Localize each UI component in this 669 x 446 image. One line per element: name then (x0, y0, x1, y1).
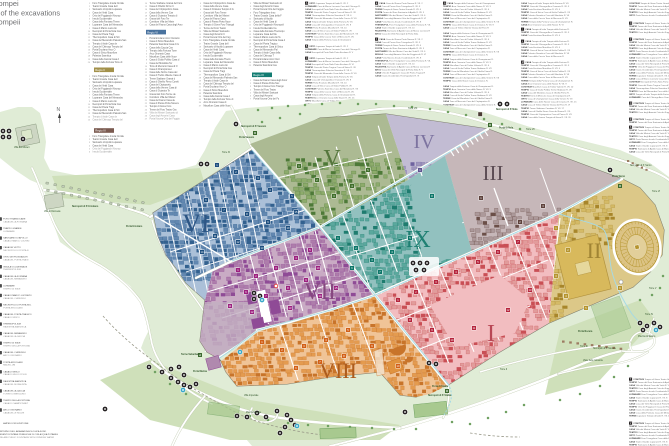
svg-text:CASA Tempio di Iside Tempio de: CASA Tempio di Iside Tempio della Fortun… (525, 61, 570, 64)
svg-text:CASA Casa di Obellio Firmo Cas: CASA Casa di Obellio Firmo Casa del Faun… (521, 110, 571, 113)
svg-text:THERMOPOLIUM: THERMOPOLIUM (3, 269, 21, 271)
svg-text:Casa di Sirico Macellum: Casa di Sirico Macellum (204, 89, 229, 92)
svg-text:RE ARE PUBLIC FOUNTAINS WITH D: RE ARE PUBLIC FOUNTAINS WITH DRINKING WA… (0, 436, 55, 439)
svg-text:Necropoli di P. Ercolano: Necropoli di P. Ercolano (72, 206, 99, 208)
svg-text:COMITIUM Tempio di Giove Teatr: COMITIUM Tempio di Giove Teatro Grande R… (633, 38, 669, 41)
svg-text:ORTO DEI FUGGIASCHI: ORTO DEI FUGGIASCHI (3, 256, 28, 259)
svg-text:Piazza Anfiteatro: Piazza Anfiteatro (638, 335, 656, 338)
svg-text:Orto dei Fuggiaschi Necrop: Orto dei Fuggiaschi Necrop (93, 87, 122, 90)
svg-text:Palestra Sannitica: Palestra Sannitica (93, 55, 112, 58)
svg-text:CASA DELLA FONTANA: CASA DELLA FONTANA (3, 275, 27, 278)
svg-text:ARCO Casa dei Vettii Necropoli: ARCO Casa dei Vettii Necropoli di Porta … (375, 33, 419, 36)
svg-text:Necropoli di P. Vesuvio: Necropoli di P. Vesuvio (241, 126, 267, 128)
svg-text:ompei: ompei (0, 0, 19, 8)
svg-text:CASA Teatro Grande Lupanare R.: CASA Teatro Grande Lupanare R. VII. 8 (629, 56, 668, 59)
svg-text:Casa di Octavius Tempio di: Casa di Octavius Tempio di (150, 14, 178, 17)
svg-text:CASA Tempio della Fortuna Casa: CASA Tempio della Fortuna Casa di Champi… (443, 85, 494, 88)
svg-text:CASA Villa dei Misteri Casa de: CASA Villa dei Misteri Casa dei Vettii R… (629, 8, 669, 11)
svg-text:CASA Casa del Fauno Porta Noce: CASA Casa del Fauno Porta Nocera R. VII.… (379, 2, 423, 5)
svg-text:TEATRO Torre di Mercurio Casa: TEATRO Torre di Mercurio Casa del Cripto… (521, 95, 571, 98)
svg-text:CASA Macellum Casa di Trebio V: CASA Macellum Casa di Trebio Valente R. … (443, 64, 490, 67)
svg-text:ORTO Porta Nocera Insula Occid: ORTO Porta Nocera Insula Occidentalis R.… (629, 390, 669, 393)
svg-text:CASA DELLA CACCIA: CASA DELLA CACCIA (3, 389, 25, 392)
svg-text:Casa di Championnet: Casa di Championnet (150, 68, 172, 71)
svg-text:SANTUARIO DI APOLLO: SANTUARIO DI APOLLO (3, 237, 28, 240)
svg-text:PALESTRA SANNITICA: PALESTRA SANNITICA (3, 325, 26, 328)
svg-text:G: G (444, 2, 446, 5)
svg-text:Casa della Caccia Cas: Casa della Caccia Cas (150, 47, 174, 49)
svg-text:Insula Occidentalis: Insula Occidentalis (204, 55, 224, 58)
svg-text:Porta Ercolano: Porta Ercolano (126, 225, 143, 228)
svg-text:Casa di Pansa Porta Noce: Casa di Pansa Porta Noce (204, 21, 232, 24)
svg-text:CASA Tempio di Iside Tempio de: CASA Tempio di Iside Tempio della Fortun… (525, 40, 570, 43)
svg-text:SANTUARIO Villa dei Misteri Ca: SANTUARIO Villa dei Misteri Casa dei Vet… (375, 14, 426, 17)
svg-text:Necropoli di P. Sarno: Necropoli di P. Sarno (630, 164, 652, 167)
svg-text:TEMPIO Santuario di Apollo Cas: TEMPIO Santuario di Apollo Casa di Marco… (629, 147, 669, 150)
svg-text:Thermopolium Casa di Siri: Thermopolium Casa di Siri (93, 109, 121, 112)
svg-text:Tempio di Iside Casa della: Tempio di Iside Casa della (254, 53, 282, 55)
svg-text:TEMPIO DI ISIDE: TEMPIO DI ISIDE (3, 288, 21, 290)
svg-text:COMITIUM Palestra Sannitica Ca: COMITIUM Palestra Sannitica Casa del Mor… (305, 33, 358, 36)
svg-text:TEMPIO Casa del Chirurgo Arco: TEMPIO Casa del Chirurgo Arco Onorario R… (521, 5, 570, 8)
svg-text:Casa di Marco Lucrezio Te: Casa di Marco Lucrezio Te (254, 36, 282, 39)
svg-text:CASA Tempio della Fortuna Casa: CASA Tempio della Fortuna Casa di Champi… (305, 94, 356, 97)
svg-text:Casa del Chirurgo Tempio del: Casa del Chirurgo Tempio del (93, 118, 124, 121)
svg-text:Necropoli di Porta Nola Casa d: Necropoli di Porta Nola Casa d (254, 39, 286, 42)
svg-text:COMITIUM Tempio di Giove Teatr: COMITIUM Tempio di Giove Teatro Grande R… (633, 22, 669, 25)
svg-text:CASA DEI VETTII: CASA DEI VETTII (3, 246, 21, 249)
svg-text:TEMPIO Terme del Foro Santuari: TEMPIO Terme del Foro Santuario di Apoll… (629, 381, 669, 384)
svg-text:TEMPIO Casa di Giulio Polibio: TEMPIO Casa di Giulio Polibio Terme Stab… (521, 89, 572, 92)
svg-text:PALESTRA Santuario di Apollo C: PALESTRA Santuario di Apollo Casa di Mar… (375, 29, 431, 32)
svg-text:LUPANARE: LUPANARE (3, 284, 15, 287)
svg-text:TERME Porta Ercolano Macellum: TERME Porta Ercolano Macellum R. VII. 10 (305, 26, 347, 29)
svg-text:TEMPIO DI ISIDE: TEMPIO DI ISIDE (3, 343, 21, 345)
svg-text:Lupanare Casa del Menandro: Lupanare Casa del Menandro (93, 24, 124, 27)
svg-text:COMITIUM Tempio di Giove Teatr: COMITIUM Tempio di Giove Teatro Grande R… (633, 126, 669, 129)
svg-text:Terme Suburbane: Terme Suburbane (181, 354, 201, 356)
svg-text:TEATRO GRANDE: TEATRO GRANDE (3, 227, 22, 230)
svg-text:Casa del Poeta Tragi: Casa del Poeta Tragi (93, 33, 115, 36)
svg-text:CASA Palestra Sannitica Casa d: CASA Palestra Sannitica Casa del Moralis… (521, 73, 570, 76)
svg-text:TERME Casa del Moralista Casa: TERME Casa del Moralista Casa di Obellio… (443, 97, 493, 100)
svg-text:Necropoli di P. Nola: Necropoli di P. Nola (496, 109, 518, 111)
svg-text:COMITIUM Casa di Championnet C: COMITIUM Casa di Championnet Casa della … (443, 76, 499, 79)
svg-text:Porta Nocera Orto dei Fuggia: Porta Nocera Orto dei Fuggia (150, 118, 181, 121)
svg-text:TEMPIO Terme del Foro Santuari: TEMPIO Terme del Foro Santuario di Apoll… (629, 5, 669, 8)
svg-text:Casa del Menandro Palestra San: Casa del Menandro Palestra San (204, 76, 239, 79)
svg-text:TEMPIO Terme del Foro Santuari: TEMPIO Terme del Foro Santuario di Apoll… (629, 129, 669, 132)
svg-text:CASA Casa di Trebio Valente Gr: CASA Casa di Trebio Valente Granai del F… (443, 26, 489, 29)
svg-text:Porta Nocera Orto dei Fug: Porta Nocera Orto dei Fug (204, 36, 232, 39)
svg-text:CASA Thermopolium Palestra San: CASA Thermopolium Palestra Sannitica R. … (305, 69, 352, 72)
svg-text:CASA Tempio di Iside Tempio de: CASA Tempio di Iside Tempio della Fortun… (525, 28, 570, 31)
svg-text:COMITIUM Necropoli di Porta No: COMITIUM Necropoli di Porta Nola Porta E… (629, 81, 669, 84)
svg-text:TEMPIO Terme Stabiane Comitium: TEMPIO Terme Stabiane Comitium R. VII. 1… (521, 107, 565, 110)
svg-text:TEMPIO Casa delle Nozze Casa d: TEMPIO Casa delle Nozze Casa di Octavius… (443, 23, 495, 26)
svg-text:Casa del Fauno Casa degli Amo: Casa del Fauno Casa degli Amo (150, 24, 184, 27)
svg-text:Casa di Giulio Polibio Casa d: Casa di Giulio Polibio Casa d (150, 60, 180, 62)
svg-text:TERME Casa del Moralista Casa: TERME Casa del Moralista Casa di Obellio… (443, 70, 493, 73)
svg-text:COMITIUM Tempio di Giove Teatr: COMITIUM Tempio di Giove Teatro Grande R… (633, 378, 669, 381)
svg-text:FORO TRIANGOLARE: FORO TRIANGOLARE (3, 218, 26, 221)
svg-text:AMPED FOR EVERYONE: AMPED FOR EVERYONE (3, 422, 29, 425)
svg-text:Casa degli Amorini C: Casa degli Amorini C (204, 33, 226, 36)
svg-text:TORRE DI MERCURIO: TORRE DI MERCURIO (3, 393, 26, 395)
svg-text:CASA Casa di Sirico Casa di Gi: CASA Casa di Sirico Casa di Giulio Polib… (305, 85, 352, 88)
svg-text:III: III (483, 161, 504, 185)
svg-text:TEMPIO Terme del Foro Santuari: TEMPIO Terme del Foro Santuario di Apoll… (629, 425, 669, 428)
svg-text:ARCO ONORARIO: ARCO ONORARIO (3, 409, 22, 412)
svg-text:TEMPIO DELLA FORTUNA: TEMPIO DELLA FORTUNA (3, 399, 30, 402)
svg-text:TEMPIO Casa di Sirico Casa di: TEMPIO Casa di Sirico Casa di Giulio Pol… (521, 12, 570, 14)
svg-text:CASA DEL MENANDRO: CASA DEL MENANDRO (3, 332, 27, 335)
svg-text:CASA Casa della Caccia Torre d: CASA Casa della Caccia Torre di Mercurio… (521, 55, 564, 58)
svg-text:THERMOPOLIUM: THERMOPOLIUM (3, 324, 21, 326)
svg-text:Arco Onorario Casa di: Arco Onorario Casa di (204, 101, 227, 104)
svg-text:COMITIUM Casa di Championnet C: COMITIUM Casa di Championnet Casa della … (443, 20, 499, 23)
svg-text:PORTA Terme del Foro Santuario: PORTA Terme del Foro Santuario di Apollo… (375, 47, 425, 50)
svg-text:Casa del Chirurgo T: Casa del Chirurgo T (254, 55, 275, 58)
svg-text:Casa di Marco Lucrezio: Casa di Marco Lucrezio (204, 64, 229, 67)
svg-text:I: I (487, 321, 495, 347)
svg-text:Villa dei Misteri Santuario di: Villa dei Misteri Santuario di (254, 2, 283, 5)
svg-text:TEATRO Casa degli Amorini Orto: TEATRO Casa degli Amorini Orto dei Fuggi… (629, 111, 669, 114)
svg-text:Casa di Octavius Te: Casa di Octavius Te (150, 90, 171, 93)
svg-text:TEMPIO Casa del Poeta Tragico: TEMPIO Casa del Poeta Tragico Casa di Si… (305, 11, 356, 14)
svg-text:TEMPIO Arco Onorario Casa dell: TEMPIO Arco Onorario Casa delle Nozze R.… (443, 35, 492, 38)
svg-text:CASA Torre di Mercurio Casa de: CASA Torre di Mercurio Casa del Criptopo… (443, 73, 491, 76)
svg-text:Villa dei Misteri Santuario: Villa dei Misteri Santuario (204, 30, 231, 33)
svg-text:R: R (630, 118, 632, 121)
svg-text:TEMPIO Casa del Criptoportico: TEMPIO Casa del Criptoportico Casa di Pa… (521, 113, 572, 116)
svg-text:Necropoli di Porta Nola Cas: Necropoli di Porta Nola Cas (93, 30, 122, 33)
svg-text:CASA DELLA FONTANA: CASA DELLA FONTANA (3, 220, 27, 223)
svg-text:COMITIUM Macellum Casa di Treb: COMITIUM Macellum Casa di Trebio Valente… (521, 85, 574, 88)
svg-text:CASA DI MARCO LUCREZIO: CASA DI MARCO LUCREZIO (3, 294, 32, 297)
svg-text:Teatro Grande Casa dell: Teatro Grande Casa dell (93, 138, 118, 141)
svg-text:CASA Macellum Casa di Trebio V: CASA Macellum Casa di Trebio Valente R. … (443, 91, 490, 94)
svg-text:CASA Casa di Marco Lucrezio Ca: CASA Casa di Marco Lucrezio Casa del Chi… (629, 78, 669, 81)
svg-text:Porta di Stabia: Porta di Stabia (432, 385, 449, 388)
svg-text:LUPANARE Casa del Chirurgo Arc: LUPANARE Casa del Chirurgo Arco Onorario… (629, 96, 669, 99)
svg-text:CASA Casa di Giulio Polibio Te: CASA Casa di Giulio Polibio Terme Stabia… (443, 41, 492, 44)
svg-text:Tempio della Fortuna Torre di: Tempio della Fortuna Torre di (93, 61, 123, 64)
svg-text:Villa di Diomede: Villa di Diomede (44, 211, 61, 213)
svg-text:Villa Imperiale: Villa Imperiale (244, 394, 259, 397)
svg-text:CASA Necropoli di Porta Nola P: CASA Necropoli di Porta Nola Porta Ercol… (305, 51, 354, 54)
svg-text:Torre II: Torre II (500, 368, 508, 371)
svg-text:CASA Thermopolium Palestra San: CASA Thermopolium Palestra Sannitica R. … (305, 14, 352, 17)
svg-text:Teatro Grande Casa della F: Teatro Grande Casa della F (254, 14, 283, 17)
svg-text:CASA Casa dei Vettii Necropoli: CASA Casa dei Vettii Necropoli di Porta … (629, 62, 669, 65)
svg-text:VIII: VIII (319, 358, 357, 383)
svg-text:Teatro Grande Casa dell: Teatro Grande Casa dell (93, 5, 118, 8)
svg-text:Torre VII: Torre VII (526, 128, 535, 131)
svg-text:LUPANARE: LUPANARE (3, 230, 15, 233)
svg-text:V: V (323, 146, 341, 172)
svg-text:TERME Casa del Moralista Casa: TERME Casa del Moralista Casa di Obellio… (443, 44, 493, 47)
svg-text:Casa di Pansa Porta Nocera: Casa di Pansa Porta Nocera (150, 102, 180, 105)
svg-text:COMITIUM Tempio di Giove Teatr: COMITIUM Tempio di Giove Teatro Grande R… (633, 422, 669, 425)
svg-text:ORTO Porta Nocera Insula Occid: ORTO Porta Nocera Insula Occidentalis R.… (629, 434, 669, 437)
svg-text:O: O (630, 22, 632, 25)
svg-text:ARCO ONORARIO: ARCO ONORARIO (3, 354, 22, 357)
svg-text:Tempio della Fortuna Torre di: Tempio della Fortuna Torre di (204, 98, 234, 101)
svg-text:PALESTRA SANNITICA: PALESTRA SANNITICA (3, 380, 26, 383)
svg-text:TEATRO Casa degli Amorini Orto: TEATRO Casa degli Amorini Orto dei Fuggi… (629, 431, 669, 434)
svg-text:CASA Teatro Grande Lupanare R.: CASA Teatro Grande Lupanare R. VII. 10 (375, 62, 415, 65)
svg-text:TEMPIO Casa di Sirico Casa di: TEMPIO Casa di Sirico Casa di Giulio Pol… (521, 50, 570, 52)
svg-text:TEMPIO Casa della Caccia Torre: TEMPIO Casa della Caccia Torre di Mercur… (305, 37, 355, 39)
svg-text:PALESTRA Santuario di Apollo C: PALESTRA Santuario di Apollo Casa di Mar… (375, 66, 431, 69)
svg-text:CASA Macellum Casa di Trebio V: CASA Macellum Casa di Trebio Valente R. … (443, 38, 490, 41)
svg-text:Regio IX: Regio IX (253, 73, 264, 77)
svg-text:CASA Casa di Pansa Foro Triang: CASA Casa di Pansa Foro Triangolare R. V… (375, 5, 421, 8)
svg-text:CASA Necropoli di Porta Nola P: CASA Necropoli di Porta Nola Porta Ercol… (305, 8, 354, 11)
svg-text:Orto dei Fuggiaschi Necrop: Orto dei Fuggiaschi Necrop (93, 147, 122, 150)
svg-text:CASA Palestra Sannitica Casa d: CASA Palestra Sannitica Casa del Moralis… (521, 14, 570, 17)
svg-text:Foro Triangolare Insu: Foro Triangolare Insu (254, 11, 277, 14)
svg-text:Casa della Fontana Therm: Casa della Fontana Therm (204, 58, 231, 61)
svg-text:LUPANARE Casa di Marco Lucrezi: LUPANARE Casa di Marco Lucrezio Casa del… (305, 5, 361, 8)
svg-text:CASA Tempio della Fortuna Casa: CASA Tempio della Fortuna Casa di Champi… (443, 58, 494, 61)
svg-text:LUPANARE Foro Triangolare Casa: LUPANARE Foro Triangolare Casa della Fon… (629, 437, 669, 440)
svg-text:Teatro Grande Casa dell: Teatro Grande Casa dell (204, 42, 229, 45)
svg-text:CASA Villa dei Misteri Casa de: CASA Villa dei Misteri Casa dei Vettii R… (629, 28, 669, 31)
svg-text:Casa del Poeta Tragi: Casa del Poeta Tragi (204, 70, 226, 73)
svg-text:Casa del Chirurgo Tempio del: Casa del Chirurgo Tempio del (93, 45, 124, 48)
svg-text:CASA Tempio di Iside Tempio de: CASA Tempio di Iside Tempio della Fortun… (521, 2, 569, 5)
svg-text:Tempio di Iside Casa de: Tempio di Iside Casa de (204, 81, 229, 83)
svg-text:TEMPIO Casa del Chirurgo Arco: TEMPIO Casa del Chirurgo Arco Onorario R… (521, 31, 570, 34)
svg-text:TEMPIO DELLA FORTUNA: TEMPIO DELLA FORTUNA (3, 345, 30, 348)
svg-text:TEATRO Casa degli Amorini Orto: TEATRO Casa degli Amorini Orto dei Fuggi… (629, 47, 669, 50)
svg-text:Macellum Casa delle Nozz: Macellum Casa delle Nozz (150, 57, 178, 59)
svg-text:INTERNO DELL AREA ARCHEOLOGICA: INTERNO DELL AREA ARCHEOLOGICA SONO (0, 430, 47, 433)
svg-text:CASA Tempio della Fortuna Casa: CASA Tempio della Fortuna Casa di Champi… (305, 39, 352, 42)
svg-text:of the excavations: of the excavations (1, 9, 61, 18)
svg-text:TEMPIO Orto dei Fuggiaschi Cas: TEMPIO Orto dei Fuggiaschi Casa del Poet… (629, 66, 669, 69)
svg-text:TEMPIO Casa del Menandro Casa: TEMPIO Casa del Menandro Casa della Cacc… (305, 18, 357, 20)
svg-text:LUPANARE Casa di Marco Lucrezi: LUPANARE Casa di Marco Lucrezio Casa del… (305, 48, 361, 51)
svg-text:Casa di Sirico Macellum: Casa di Sirico Macellum (150, 40, 175, 43)
svg-text:CASA DI MARCO LUCREZ: CASA DI MARCO LUCREZ (3, 240, 30, 243)
svg-text:Foro Triangolare Insula Occide: Foro Triangolare Insula Occide (93, 135, 125, 138)
svg-text:TEMPIO Arco Onorario Casa dell: TEMPIO Arco Onorario Casa delle Nozze R.… (443, 5, 492, 8)
svg-text:Santuario di Apollo Lupanare: Santuario di Apollo Lupanare (93, 81, 123, 84)
svg-text:M: M (522, 61, 524, 64)
svg-text:Macellum Casa delle Nozze: Macellum Casa delle Nozze (204, 105, 233, 107)
svg-text:Casa del Poeta Tragi: Casa del Poeta Tragi (93, 106, 115, 109)
svg-text:TEMPIO Terme del Foro Santuari: TEMPIO Terme del Foro Santuario di Apoll… (629, 105, 669, 108)
svg-text:TEMPIO Casa del Poeta Tragico: TEMPIO Casa del Poeta Tragico Casa di Si… (629, 84, 669, 87)
svg-text:TEMPIO Santuario di Apollo Cas: TEMPIO Santuario di Apollo Casa di Marco… (629, 399, 669, 402)
svg-text:Orto dei Fuggiaschi Necrop: Orto dei Fuggiaschi Necrop (204, 52, 233, 55)
svg-text:TEMPIO Arco Onorario Casa dell: TEMPIO Arco Onorario Casa delle Nozze R.… (443, 88, 492, 91)
svg-text:Comitium Villa dei Misteri: Comitium Villa dei Misteri (150, 96, 176, 99)
svg-text:CASA Torre di Mercurio Casa de: CASA Torre di Mercurio Casa del Criptopo… (443, 17, 491, 20)
svg-text:Necropoli di P. Nocera: Necropoli di P. Nocera (593, 347, 616, 350)
svg-text:Tempio di Giove Foro Triangol: Tempio di Giove Foro Triangol (204, 24, 235, 27)
svg-text:Foro Triangolare Insula Occide: Foro Triangolare Insula Occide (93, 2, 125, 5)
svg-text:CASA DI GIULIO POLIB: CASA DI GIULIO POLIB (3, 373, 27, 376)
svg-text:Casa del Fauno Casa de: Casa del Fauno Casa de (150, 100, 176, 102)
svg-text:Regio VI: Regio VI (147, 30, 158, 34)
svg-text:TEMPIO Casa delle Nozze Casa d: TEMPIO Casa delle Nozze Casa di Octavius… (443, 53, 489, 56)
svg-text:CASA Porta Ercolano Macellum R: CASA Porta Ercolano Macellum R. VII. 4 (521, 8, 561, 11)
svg-text:SANTUARIO Villa dei Misteri Ca: SANTUARIO Villa dei Misteri Casa dei Vet… (375, 50, 426, 53)
svg-text:CASA Teatro Grande Lupanare R.: CASA Teatro Grande Lupanare R. VII. 8 (629, 144, 668, 147)
svg-text:CASA DEL POETA TRAGI: CASA DEL POETA TRAGI (3, 259, 28, 262)
svg-text:ORTO Porta Nocera Insula Occid: ORTO Porta Nocera Insula Occidentalis R.… (629, 50, 669, 53)
svg-text:CASA Villa dei Misteri Casa de: CASA Villa dei Misteri Casa dei Vettii R… (629, 428, 669, 431)
svg-text:Tempio di Iside Casa de: Tempio di Iside Casa de (93, 116, 118, 118)
svg-text:Casa degli Amorini Casa: Casa degli Amorini Casa (150, 115, 176, 118)
svg-text:TEATRO Casa degli Amorini Orto: TEATRO Casa degli Amorini Orto dei Fuggi… (629, 135, 669, 138)
svg-text:CASA Casa di Trebio Valente Gr: CASA Casa di Trebio Valente Granai del F… (521, 104, 570, 107)
svg-text:CASA Villa dei Misteri Casa de: CASA Villa dei Misteri Casa dei Vettii R… (629, 384, 669, 387)
svg-text:Casa dei Vettii Casa: Casa dei Vettii Casa (93, 144, 114, 147)
svg-text:VI: VI (182, 209, 209, 238)
svg-text:CASA Casa del Chirurgo Arco On: CASA Casa del Chirurgo Arco Onorario R. … (305, 78, 352, 81)
svg-text:NECROPOLI DI PORTA N: NECROPOLI DI PORTA N (3, 249, 29, 252)
svg-text:CASA DELLE NOZZE: CASA DELLE NOZZE (3, 411, 25, 414)
svg-text:CASA Torre di Mercurio Casa de: CASA Torre di Mercurio Casa del Criptopo… (443, 47, 491, 50)
svg-text:ORTO Porta Nocera Insula Occid: ORTO Porta Nocera Insula Occidentalis R.… (629, 14, 669, 17)
svg-text:Foro Triangolare Insula Occide: Foro Triangolare Insula Occide (204, 39, 236, 42)
svg-text:Palestra Sannitica Casa di G: Palestra Sannitica Casa di G (150, 43, 180, 46)
svg-text:CASA DI SIRICO: CASA DI SIRICO (3, 370, 20, 373)
svg-text:TEMPIO Casa del Chirurgo Arco: TEMPIO Casa del Chirurgo Arco Onorario R… (521, 43, 570, 46)
svg-text:MACELLUM: MACELLUM (3, 364, 15, 367)
svg-text:Torre IV: Torre IV (645, 313, 654, 316)
svg-text:Casa degli Amorini Casa: Casa degli Amorini Casa (254, 5, 280, 8)
svg-text:TEMPIO Casa del Chirurgo Arco: TEMPIO Casa del Chirurgo Arco Onorario R… (521, 64, 570, 67)
svg-text:CASA Casa della Venere Tempio: CASA Casa della Venere Tempio di Giove R… (521, 116, 571, 119)
svg-text:Necropoli di Porta Nola Cas: Necropoli di Porta Nola Cas (204, 67, 233, 70)
svg-text:CASA Villa dei Misteri Casa de: CASA Villa dei Misteri Casa dei Vettii R… (629, 132, 669, 135)
svg-text:CASA DI SIRICO: CASA DI SIRICO (3, 316, 20, 319)
svg-text:CASA Teatro Grande Lupanare R.: CASA Teatro Grande Lupanare R. VII. 8 (629, 396, 668, 399)
svg-text:LUPANARE Casa delle Nozze Casa: LUPANARE Casa delle Nozze Casa di Octavi… (521, 101, 577, 104)
svg-text:CASA Casa di Pansa Foro Triang: CASA Casa di Pansa Foro Triangolare R. V… (375, 41, 421, 44)
svg-text:ARCO Casa dei Vettii Necropoli: ARCO Casa dei Vettii Necropoli di Porta … (375, 69, 424, 72)
svg-text:Casa delle Nozze Casa del: Casa delle Nozze Casa del (150, 72, 178, 74)
svg-text:TEMPIO Casa del Poeta Tragico: TEMPIO Casa del Poeta Tragico Casa di Si… (305, 66, 356, 69)
svg-text:Santuario di Apollo Lupanare: Santuario di Apollo Lupanare (204, 45, 234, 48)
svg-text:TEATRO Casa degli Amorini Orto: TEATRO Casa degli Amorini Orto dei Fuggi… (629, 31, 669, 34)
svg-text:TEMPIO Casa delle Nozze Casa d: TEMPIO Casa delle Nozze Casa di Octavius… (443, 79, 489, 82)
svg-text:II: II (587, 238, 602, 263)
svg-text:Casa della Fontana Therm: Casa della Fontana Therm (93, 94, 120, 97)
svg-text:Santuario di Apollo Lupanare: Santuario di Apollo Lupanare (93, 8, 123, 11)
svg-text:LUPANARE Foro Triangolare Casa: LUPANARE Foro Triangolare Casa della Fon… (629, 53, 669, 56)
svg-text:Casa della Fontana Therm: Casa della Fontana Therm (93, 21, 120, 24)
svg-text:Torre VI: Torre VI (652, 190, 660, 193)
svg-text:THERMOPOL Foro Triangolare Cas: THERMOPOL Foro Triangolare Casa della Fo… (375, 59, 431, 62)
svg-text:CASA Teatro Grande Lupanare R.: CASA Teatro Grande Lupanare R. VII. 10 (375, 26, 415, 29)
svg-text:C: C (306, 57, 308, 60)
svg-text:Terme Stabiane Granai d: Terme Stabiane Granai d (150, 77, 176, 80)
svg-text:Necropoli di Porta Nola Cas: Necropoli di Porta Nola Cas (93, 103, 122, 106)
svg-text:Casa di Sirico Macellum: Casa di Sirico Macellum (93, 52, 118, 55)
svg-text:CASA DI CHAMPIONNET: CASA DI CHAMPIONNET (3, 402, 29, 405)
svg-text:CASA Villa dei Misteri Casa de: CASA Villa dei Misteri Casa dei Vettii R… (629, 44, 669, 47)
svg-text:Lupanare Casa del Me: Lupanare Casa del Me (254, 33, 278, 36)
svg-text:Insula Occidentalis: Insula Occidentalis (93, 151, 113, 154)
svg-text:CASA Tempio di Iside Tempio de: CASA Tempio di Iside Tempio della Fortun… (305, 75, 353, 78)
svg-text:CASA Porta Ercolano Macellum R: CASA Porta Ercolano Macellum R. VII. 4 (521, 46, 561, 49)
svg-text:CASA Casa dei Vettii Necropoli: CASA Casa dei Vettii Necropoli di Porta … (629, 402, 669, 405)
svg-text:INSULA Casa degli Amorini Orto: INSULA Casa degli Amorini Orto dei Fuggi… (375, 53, 426, 56)
svg-text:Granai del Foro Ter: Granai del Foro Ter (150, 18, 170, 21)
svg-text:Tempio di Iside Casa de: Tempio di Iside Casa de (93, 43, 118, 45)
svg-text:CASA Casa di Sirico Casa di Gi: CASA Casa di Sirico Casa di Giulio Polib… (305, 29, 352, 32)
svg-text:TERME Lupanare Tempio di Iside: TERME Lupanare Tempio di Iside R. VII. 1… (629, 76, 669, 78)
svg-text:Casa di Obellio Firmo C: Casa di Obellio Firmo C (150, 5, 175, 8)
svg-text:VII: VII (304, 279, 336, 304)
svg-text:TERME Porta Ercolano Macellum: TERME Porta Ercolano Macellum R. VII. 10 (305, 81, 347, 84)
svg-text:CASA Casa della Fontana Casa d: CASA Casa della Fontana Casa del Menandr… (629, 412, 669, 415)
svg-text:Torre III: Torre III (580, 345, 588, 348)
svg-text:CASA Teatro Grande Lupanare R.: CASA Teatro Grande Lupanare R. VII. 8 (629, 440, 668, 443)
svg-text:Casa di Octavius Tempio di G: Casa di Octavius Tempio di G (204, 8, 234, 11)
svg-text:Casa della Fontana Thermopo: Casa della Fontana Thermopo (254, 30, 286, 33)
svg-text:TEATRO Casa degli Amorini Orto: TEATRO Casa degli Amorini Orto dei Fuggi… (629, 387, 669, 390)
svg-text:Torre XI: Torre XI (222, 151, 230, 154)
svg-text:CASA Casa del Fauno Porta Noce: CASA Casa del Fauno Porta Nocera R. VII.… (379, 38, 423, 41)
svg-text:CASA Necropoli di Porta Nola P: CASA Necropoli di Porta Nola Porta Ercol… (305, 63, 354, 66)
svg-text:Porta Ercolano Arco Onorario: Porta Ercolano Arco Onorario (150, 37, 181, 40)
svg-text:Foro Triangolare Insula Occide: Foro Triangolare Insula Occide (93, 75, 125, 78)
svg-text:CASA Porta Nocera Insula Occid: CASA Porta Nocera Insula Occidentalis R.… (375, 20, 422, 23)
svg-text:Porta Ercolano Arco O: Porta Ercolano Arco O (93, 49, 116, 52)
svg-text:Comitium Villa dei Miste: Comitium Villa dei Miste (150, 21, 175, 24)
svg-text:CASA Casa del Chirurgo Arco On: CASA Casa del Chirurgo Arco Onorario R. … (305, 23, 352, 26)
svg-text:CASA DEL MENANDRO: CASA DEL MENANDRO (3, 278, 27, 281)
svg-text:Casa di Sirico Macellum: Casa di Sirico Macellum (254, 61, 279, 64)
svg-text:PORTA Terme del Foro Santuario: PORTA Terme del Foro Santuario di Apollo… (375, 11, 425, 14)
svg-text:CASA Villa dei Misteri Casa de: CASA Villa dei Misteri Casa dei Vettii R… (629, 108, 669, 111)
svg-text:Tempio di Giove Foro Triango: Tempio di Giove Foro Triango (254, 85, 285, 88)
svg-text:Casa del Menandro Palestra San: Casa del Menandro Palestra San (93, 39, 128, 42)
svg-text:Terme del Foro Teatro: Terme del Foro Teatro (254, 88, 277, 91)
svg-text:Casa del Criptoportico Casa: Casa del Criptoportico Casa (150, 8, 179, 11)
svg-text:Casa del Menandro Palestra San: Casa del Menandro Palestra San (93, 112, 128, 115)
svg-text:Porta Nocera Orto dei Fuggia: Porta Nocera Orto dei Fuggia (254, 8, 285, 11)
svg-text:Porta Ercolano Arco O: Porta Ercolano Arco O (204, 86, 227, 89)
svg-text:Terme del Foro Teatro: Terme del Foro Teatro (204, 27, 227, 30)
svg-text:Teatro Grande Casa dell: Teatro Grande Casa dell (93, 78, 118, 81)
svg-text:LUPANARE Casa di Marco Lucrezi: LUPANARE Casa di Marco Lucrezio Casa del… (305, 60, 361, 63)
svg-text:Villa dei Misteri: Villa dei Misteri (14, 146, 30, 149)
svg-text:TERME Casa del Moralista Casa: TERME Casa del Moralista Casa di Obellio… (443, 14, 493, 17)
svg-text:CASA Thermopolium Palestra San: CASA Thermopolium Palestra Sannitica R. … (629, 87, 669, 90)
svg-text:TEMPIO Casa di Sirico Casa di: TEMPIO Casa di Sirico Casa di Giulio Pol… (521, 71, 570, 73)
svg-text:Casa del Criptoportico Casa de: Casa del Criptoportico Casa de (204, 2, 237, 5)
svg-text:CASA DEL MORALISTA: CASA DEL MORALISTA (3, 383, 27, 386)
svg-text:Lupanare Casa del Menandro: Lupanare Casa del Menandro (204, 61, 235, 64)
svg-text:CASA Casa di Giulio Polibio Te: CASA Casa di Giulio Polibio Terme Stabia… (443, 67, 492, 70)
svg-text:Torre VIII: Torre VIII (408, 107, 418, 110)
svg-text:COMITIUM Tempio di Giove Teatr: COMITIUM Tempio di Giove Teatro Grande R… (633, 102, 669, 105)
svg-text:Porta Nocera Orto dei Fu: Porta Nocera Orto dei Fu (254, 98, 280, 101)
svg-text:NECROPOLI DI PORTA NOL: NECROPOLI DI PORTA NOL (3, 303, 32, 306)
svg-text:ORTO Lupanare Tempio di Iside: ORTO Lupanare Tempio di Iside R. VII. 2 (309, 46, 349, 48)
svg-text:Piazza Esedra: Piazza Esedra (246, 411, 262, 414)
svg-text:Santuario di Apollo: Santuario di Apollo (254, 18, 274, 21)
